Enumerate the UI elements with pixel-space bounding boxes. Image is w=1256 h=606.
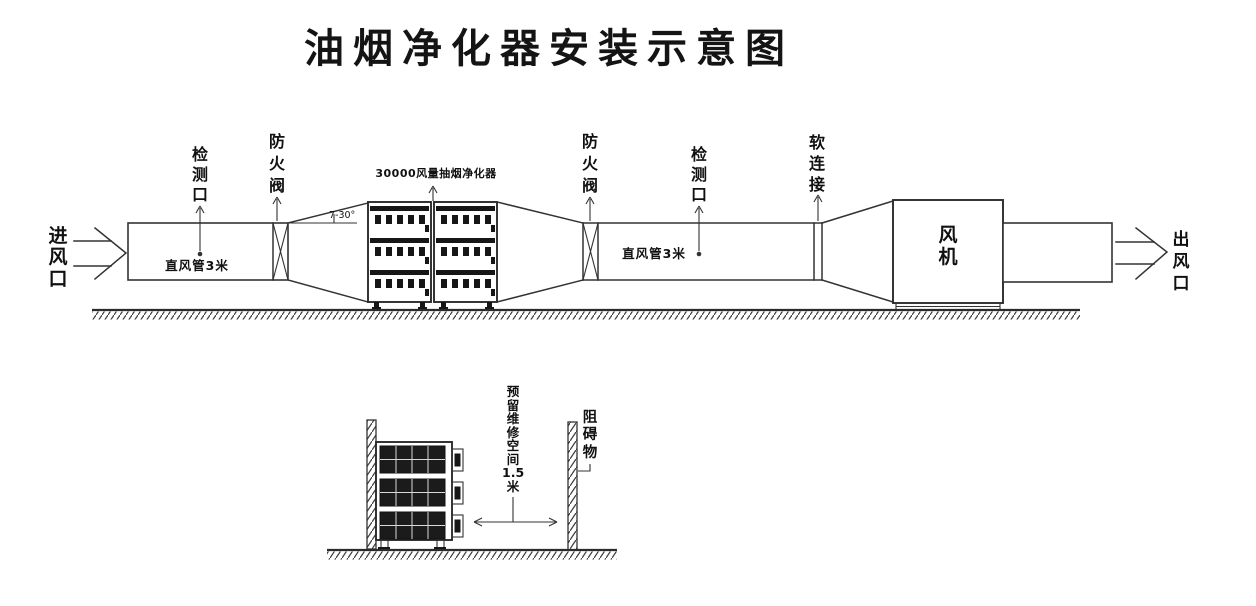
- straight-duct-left-label: 直风管3米: [161, 258, 233, 274]
- contraction-transition: [497, 202, 583, 302]
- installation-diagram: 油烟净化器安装示意图 进 风 口 检 测 口 防 火 阀 直风管3米 7-30°…: [0, 0, 1256, 606]
- side-wall-left: [367, 420, 376, 549]
- ground-main: [92, 310, 1080, 320]
- outlet-arrow: [1116, 228, 1167, 279]
- obstacle-label: 阻 碍 物: [579, 410, 601, 462]
- fire-damper-right-symbol: [583, 223, 598, 280]
- fan-inlet-transition: [822, 201, 893, 302]
- ground-side: [327, 550, 617, 560]
- purifier-label-leader: [429, 186, 437, 201]
- duct-outlet: [1003, 223, 1112, 282]
- inlet-label: 进 风 口: [46, 226, 70, 290]
- fire-damper-left-label: 防 火 阀: [266, 131, 288, 196]
- inspection-port-left-label: 检 测 口: [189, 145, 211, 205]
- purifier-front-view: [368, 202, 497, 310]
- diagram-linework: [0, 0, 1256, 606]
- obstacle-wall: [568, 422, 577, 550]
- flexible-connection-label: 软 连 接: [806, 133, 828, 195]
- purifier-side-view: [376, 442, 463, 550]
- diagram-title: 油烟净化器安装示意图: [304, 16, 784, 74]
- inlet-arrow: [74, 228, 126, 279]
- inspection-port-right-label: 检 测 口: [688, 145, 710, 205]
- fan-label: 风 机: [936, 225, 960, 269]
- straight-duct-right-label: 直风管3米: [618, 246, 690, 262]
- flexible-connection-symbol: [814, 223, 822, 280]
- maintenance-space-dimension: [474, 497, 557, 526]
- purifier-label: 30000风量抽烟净化器: [374, 167, 498, 181]
- expansion-angle-label: 7-30°: [329, 210, 361, 222]
- maintenance-space-label: 预 留 维 修 空 间 1.5 米: [502, 385, 524, 493]
- obstacle-leader: [578, 464, 590, 471]
- outlet-label: 出 风 口: [1169, 230, 1193, 295]
- fire-damper-right-label: 防 火 阀: [579, 131, 601, 196]
